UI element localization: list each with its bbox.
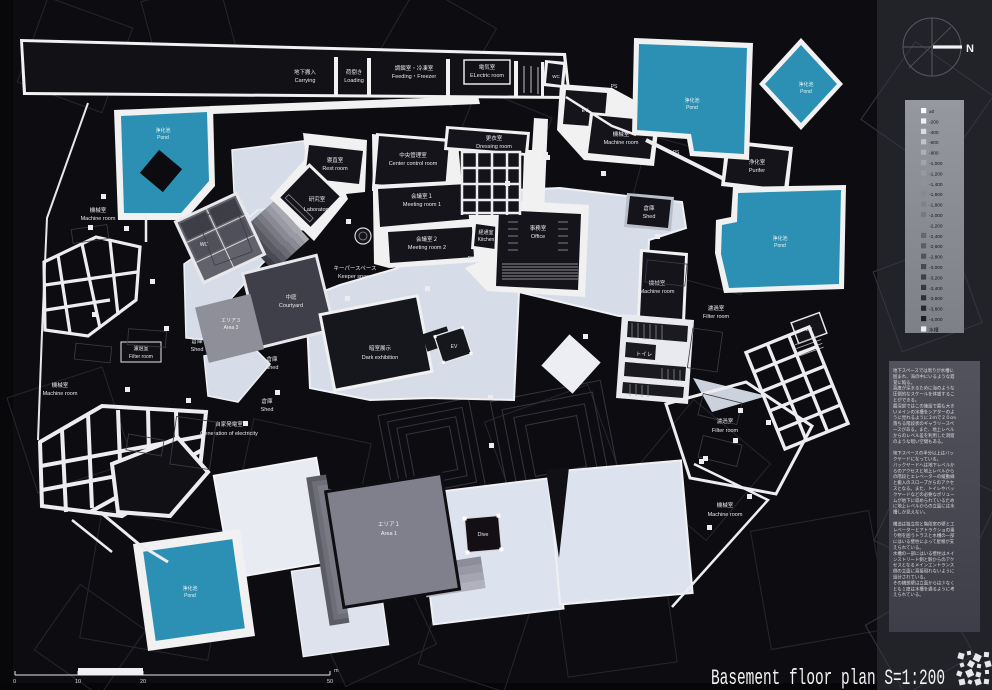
svg-text:会議室１: 会議室１ [411,192,433,200]
svg-text:Keeper space: Keeper space [338,274,372,280]
svg-text:浄化池: 浄化池 [684,97,699,104]
svg-text:-1,000: -1,000 [929,161,943,167]
svg-text:Shed: Shed [266,365,279,371]
svg-text:Dark exhibition: Dark exhibition [362,355,398,361]
svg-text:Pond: Pond [157,135,169,141]
svg-text:-2,600: -2,600 [929,244,943,250]
svg-text:Shed: Shed [191,347,204,353]
svg-text:濾過室: 濾過室 [717,417,734,425]
svg-text:EV: EV [451,344,458,350]
svg-text:Office: Office [531,234,545,240]
svg-text:経通室: 経通室 [478,229,493,236]
svg-text:Shed: Shed [643,214,656,220]
svg-text:Shed: Shed [261,407,274,413]
svg-text:PS: PS [611,84,618,90]
svg-text:更衣室: 更衣室 [486,134,503,142]
svg-text:電気室: 電気室 [479,63,496,71]
svg-text:-1,800: -1,800 [929,203,943,209]
svg-text:Purifer: Purifer [749,168,765,174]
svg-text:m: m [334,668,339,674]
svg-text:10: 10 [75,679,81,685]
svg-text:-2,800: -2,800 [929,255,943,261]
svg-text:調餌室・冷凍室: 調餌室・冷凍室 [395,64,434,72]
svg-text:-2,000: -2,000 [929,213,943,219]
svg-text:浄化池: 浄化池 [182,585,197,592]
svg-text:研究室: 研究室 [309,195,326,203]
svg-text:浄化池: 浄化池 [798,81,813,88]
svg-text:0: 0 [13,679,16,685]
svg-text:-4,000: -4,000 [929,317,943,323]
svg-text:機械室: 機械室 [717,501,734,509]
svg-text:Machine room: Machine room [43,391,78,397]
svg-text:Pond: Pond [774,243,786,249]
svg-text:Filter room: Filter room [712,428,739,434]
svg-text:Courtyard: Courtyard [279,303,303,309]
svg-text:Center control room: Center control room [389,161,438,167]
svg-text:倉庫: 倉庫 [191,337,203,345]
svg-text:荷捌き: 荷捌き [346,68,363,76]
svg-text:±0: ±0 [929,109,935,115]
svg-text:Dressing room: Dressing room [476,144,512,150]
svg-text:-3,600: -3,600 [929,296,943,302]
svg-text:Machine room: Machine room [708,512,743,518]
svg-text:Area 1: Area 1 [381,531,397,537]
svg-text:Pond: Pond [686,105,698,111]
svg-text:-3,000: -3,000 [929,265,943,271]
svg-text:暗室展示: 暗室展示 [369,344,392,352]
svg-text:浄化池: 浄化池 [155,127,170,134]
svg-text:中庭: 中庭 [285,293,297,301]
svg-text:倉庫: 倉庫 [643,204,655,212]
svg-text:槽しか見えない。: 槽しか見えない。 [893,509,928,516]
svg-text:-3,800: -3,800 [929,307,943,313]
svg-text:地下搬入: 地下搬入 [294,68,317,76]
svg-text:Pond: Pond [800,89,812,95]
svg-text:Area 3: Area 3 [224,325,239,331]
svg-text:Meeting room 1: Meeting room 1 [403,202,441,208]
svg-text:-1,600: -1,600 [929,192,943,198]
svg-text:寝直室: 寝直室 [327,156,344,164]
svg-text:ELectric room: ELectric room [470,73,504,79]
svg-text:-3,400: -3,400 [929,286,943,292]
svg-text:Filter room: Filter room [129,354,153,360]
svg-text:Loading: Loading [344,78,364,84]
svg-text:エリア３: エリア３ [221,318,241,324]
svg-text:キーパースペース: キーパースペース [333,265,376,272]
svg-text:WC: WC [552,74,560,79]
svg-text:機械室: 機械室 [52,381,69,389]
svg-text:-2,400: -2,400 [929,234,943,240]
svg-text:Generation of electricity: Generation of electricity [200,431,258,437]
svg-text:Basement floor plan S=1:200: Basement floor plan S=1:200 [711,666,945,690]
svg-text:PS: PS [583,598,590,604]
svg-text:20: 20 [140,679,146,685]
svg-text:Rest room: Rest room [322,166,348,172]
svg-text:Meeting room 2: Meeting room 2 [408,245,446,251]
svg-text:-400: -400 [929,130,939,136]
svg-text:Dive: Dive [477,532,488,538]
svg-text:Laboratory: Laboratory [304,207,331,213]
svg-text:-200: -200 [929,119,939,125]
svg-text:Machine room: Machine room [81,216,116,222]
svg-text:Pond: Pond [184,593,196,599]
svg-text:PS: PS [468,256,475,262]
svg-text:N: N [966,43,974,55]
svg-text:濾過室: 濾過室 [708,304,725,312]
svg-text:-2,200: -2,200 [929,223,943,229]
svg-text:自家発電室: 自家発電室 [215,420,243,428]
svg-text:Filter room: Filter room [703,314,730,320]
svg-text:-1,400: -1,400 [929,182,943,188]
svg-text:機械室: 機械室 [90,206,107,214]
svg-text:-3,200: -3,200 [929,275,943,281]
svg-text:Machine room: Machine room [640,289,675,295]
svg-text:水槽: 水槽 [929,326,939,333]
svg-text:トイレ: トイレ [636,352,653,358]
svg-text:-800: -800 [929,151,939,157]
svg-text:50: 50 [327,679,333,685]
svg-text:のような暗い空間もある。: のような暗い空間もある。 [893,438,946,445]
svg-text:Carrying: Carrying [295,78,316,84]
svg-text:Kitchen: Kitchen [478,237,495,243]
svg-text:エリア１: エリア１ [378,521,400,528]
svg-text:浄化池: 浄化池 [772,235,787,242]
svg-text:Machine room: Machine room [604,140,639,146]
svg-text:倉庫: 倉庫 [261,397,273,405]
svg-text:Feeding・Freezer: Feeding・Freezer [392,74,436,80]
svg-text:倉庫: 倉庫 [266,355,278,363]
svg-text:-600: -600 [929,140,939,146]
svg-text:浄化室: 浄化室 [749,158,766,166]
svg-text:事務室: 事務室 [530,224,547,232]
svg-text:-1,200: -1,200 [929,171,943,177]
svg-text:中央管理室: 中央管理室 [399,151,427,159]
svg-text:会議室２: 会議室２ [416,235,438,243]
